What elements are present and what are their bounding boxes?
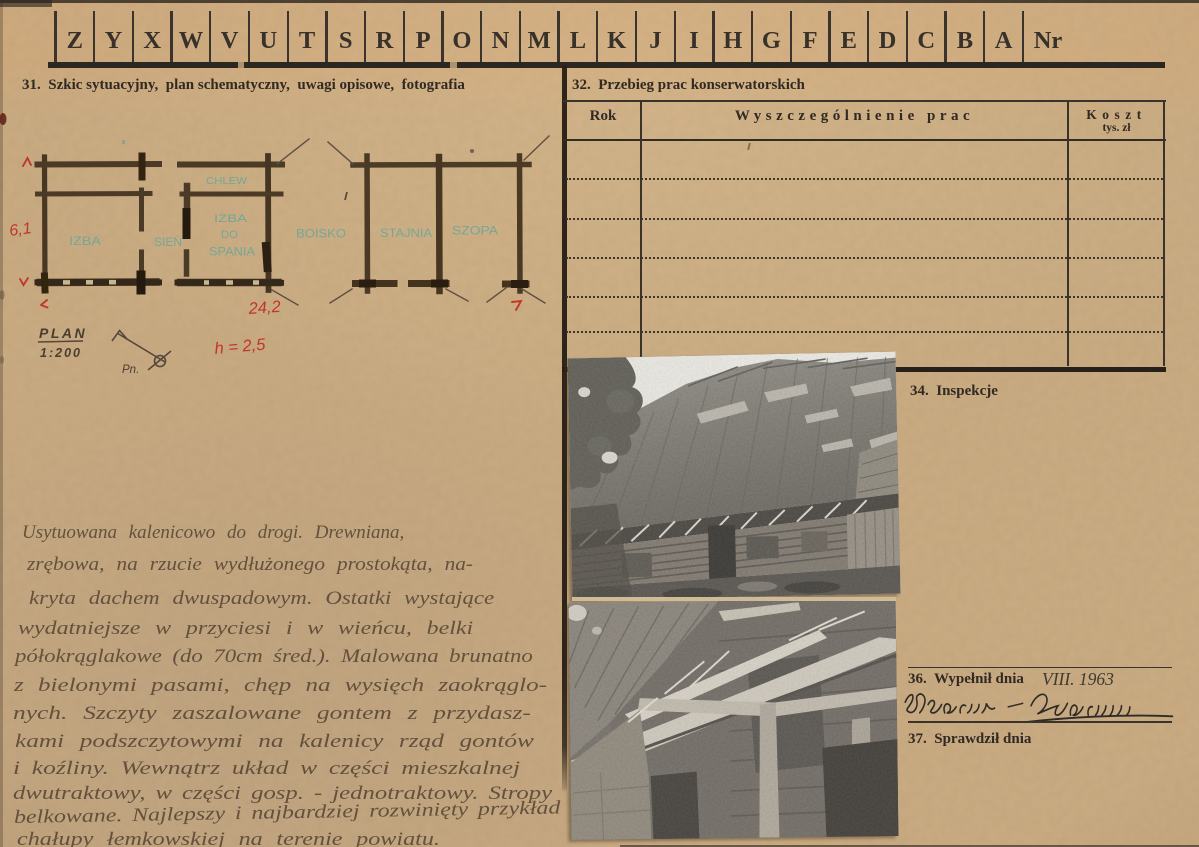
svg-text:STAJNIA: STAJNIA <box>380 226 432 240</box>
svg-text:PLAN: PLAN <box>39 325 87 341</box>
svg-text:DO: DO <box>221 229 238 241</box>
svg-text:SZOPA: SZOPA <box>452 224 498 238</box>
svg-text:h = 2,5: h = 2,5 <box>214 336 267 358</box>
svg-text:SIEŃ: SIEŃ <box>154 234 182 249</box>
svg-text:IZBA: IZBA <box>214 213 248 225</box>
svg-text:6,1: 6,1 <box>8 220 32 240</box>
svg-text:IZBA: IZBA <box>69 234 101 248</box>
svg-text:Pn.: Pn. <box>122 364 139 376</box>
svg-text:1:200: 1:200 <box>40 346 82 360</box>
svg-text:CHLEW: CHLEW <box>206 176 248 187</box>
svg-text:BOISKO: BOISKO <box>296 227 346 241</box>
svg-text:24,2: 24,2 <box>247 298 281 318</box>
svg-text:SPANIA: SPANIA <box>209 247 255 259</box>
